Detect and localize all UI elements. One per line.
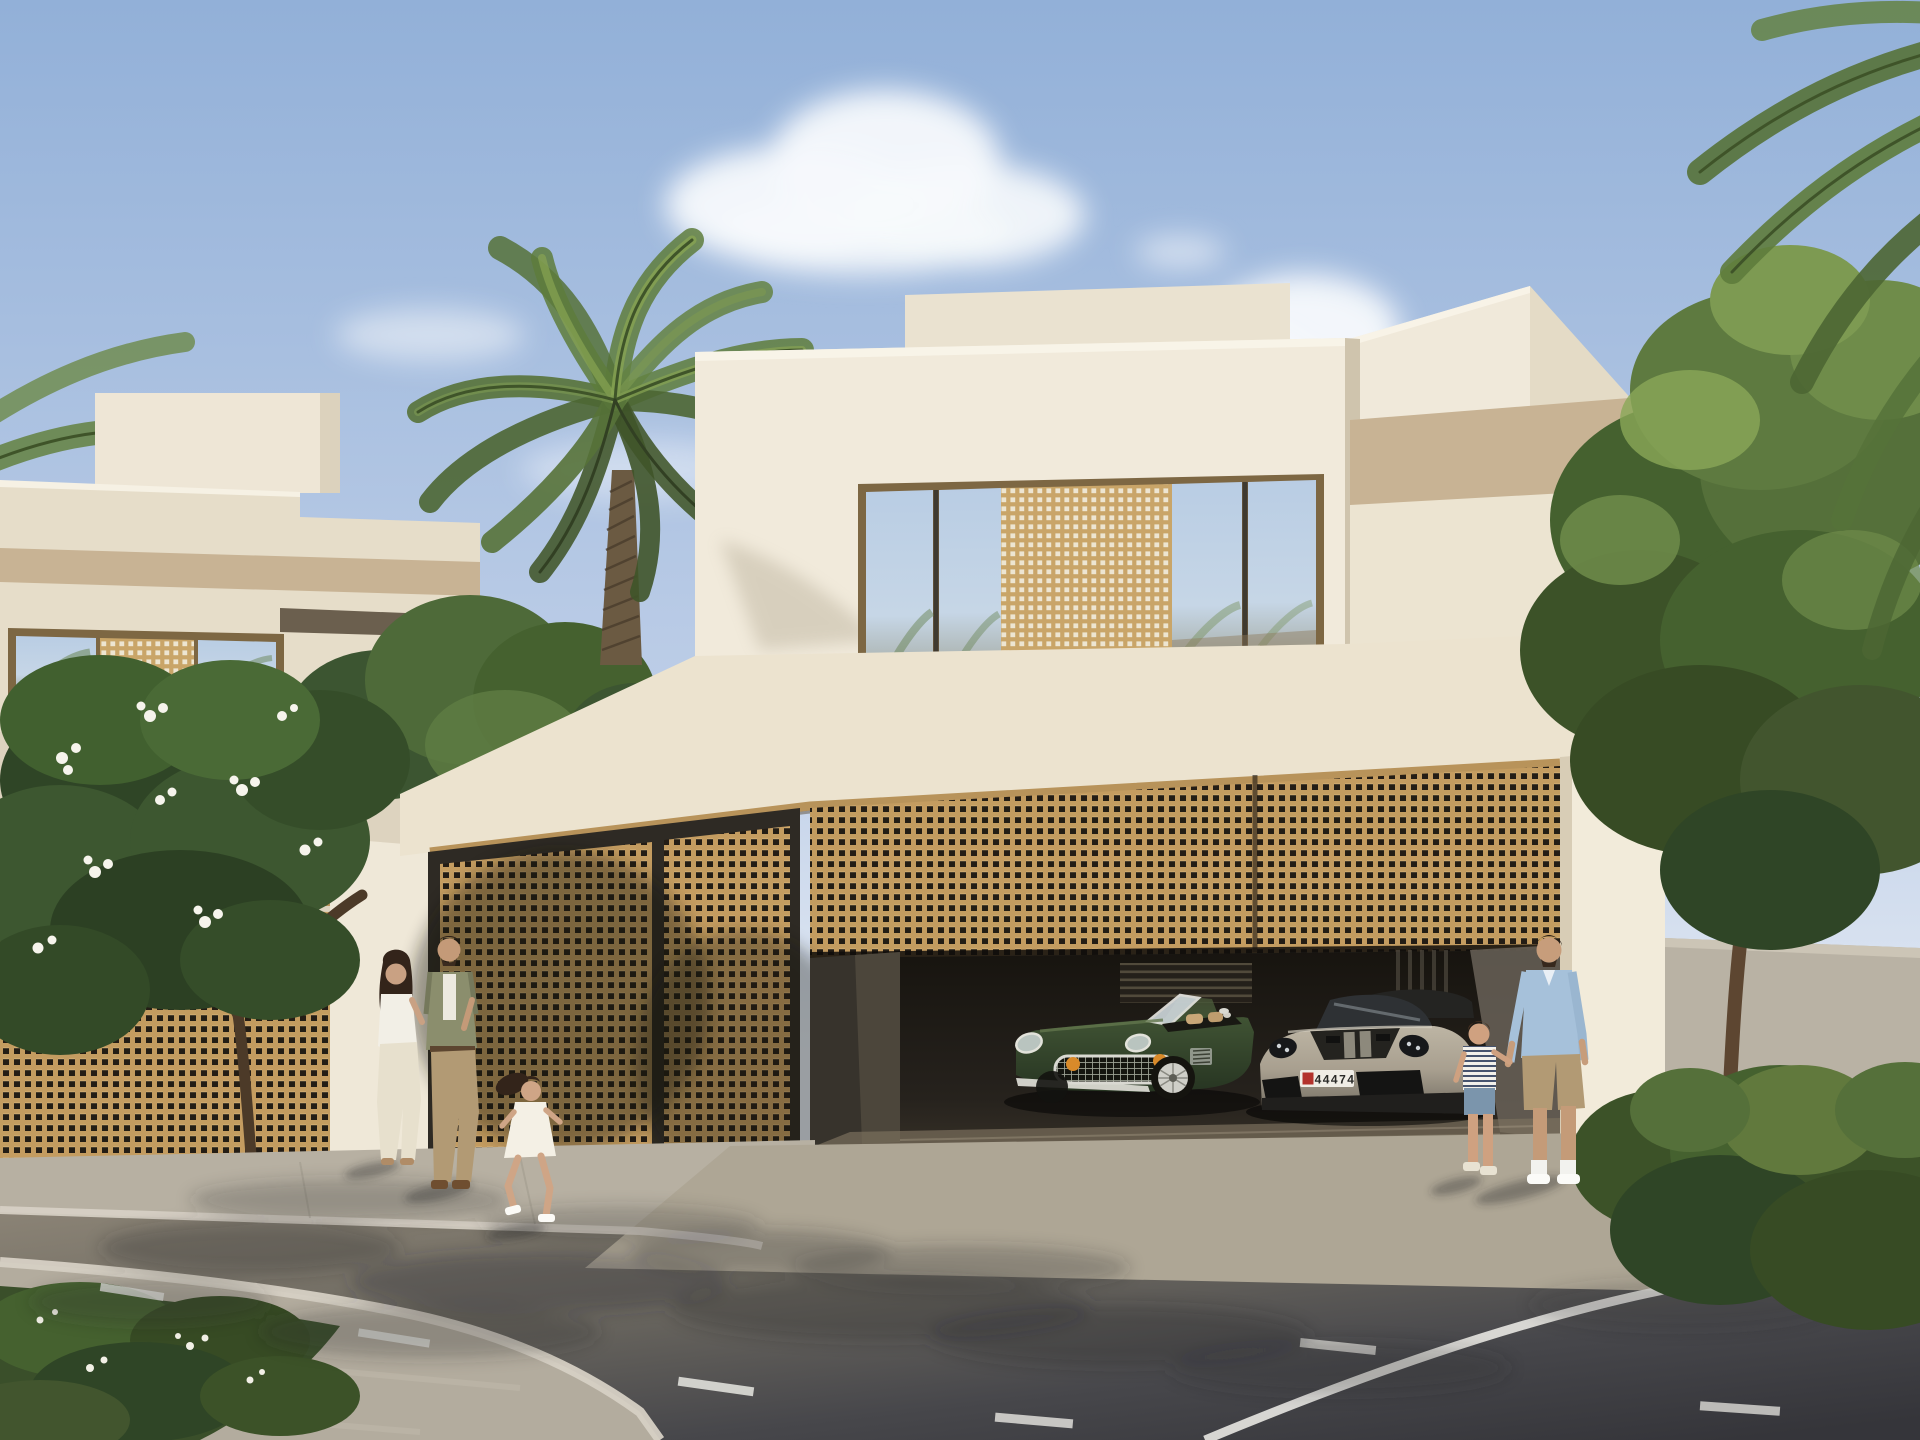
- villa-left-roof-box: [95, 393, 340, 493]
- villa-render-scene: 44474: [0, 0, 1920, 1440]
- plate-number: 44474: [1315, 1073, 1356, 1087]
- plate-badge: [1303, 1073, 1314, 1085]
- person-man: [426, 936, 479, 1189]
- lattice-gate: [410, 808, 855, 1190]
- boy-striped-tee: [1463, 1046, 1496, 1090]
- license-plate: 44474: [1300, 1070, 1355, 1087]
- garage: 44474: [810, 945, 1560, 1162]
